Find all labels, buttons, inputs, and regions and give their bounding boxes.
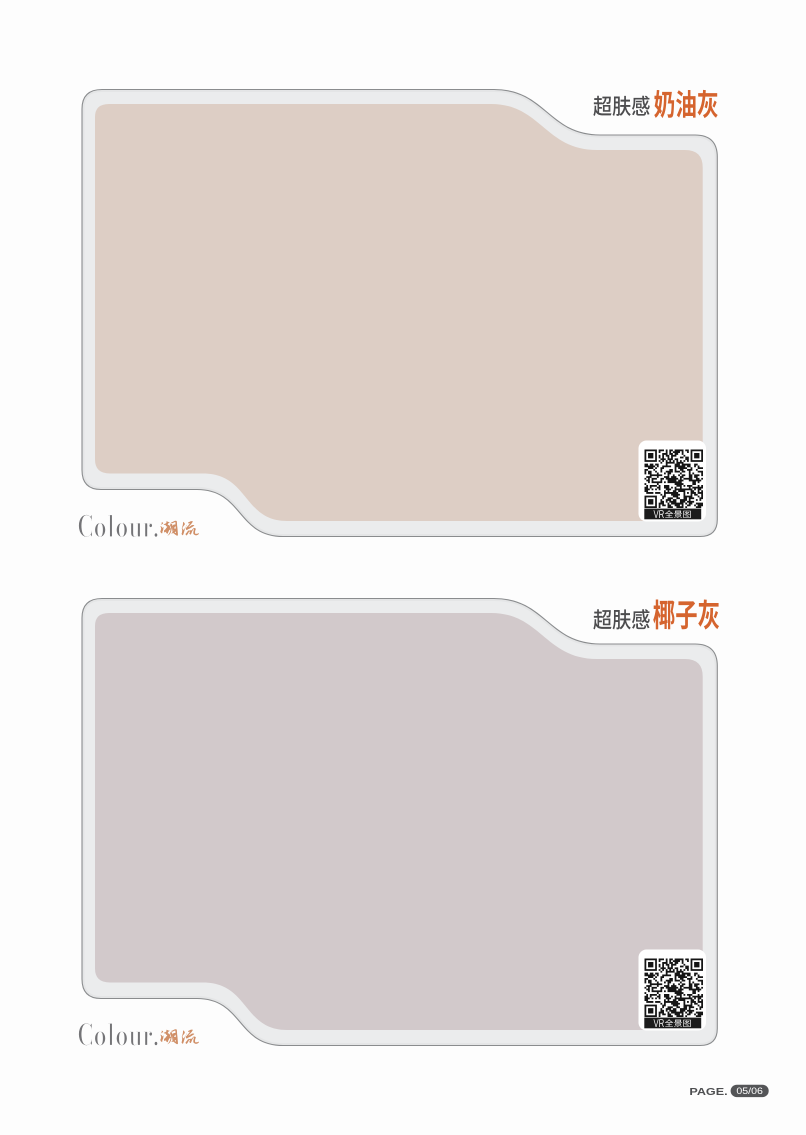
svg-text:05/06: 05/06 — [736, 1086, 763, 1097]
svg-text:PAGE.: PAGE. — [689, 1087, 728, 1098]
